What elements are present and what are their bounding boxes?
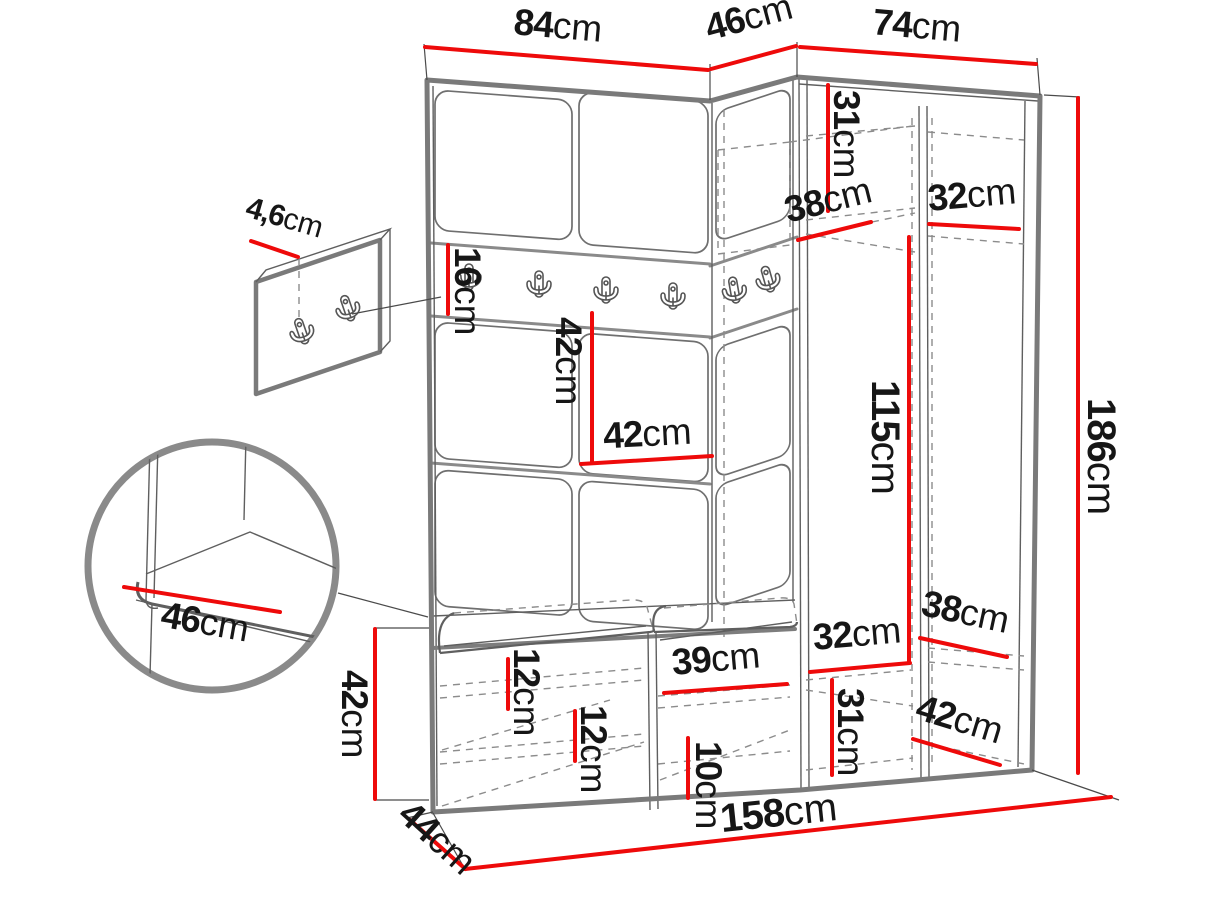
dim-line-84 xyxy=(425,47,708,70)
dimension-label: 186cm xyxy=(1079,398,1123,515)
dimension-label: 31cm xyxy=(830,688,871,776)
dimension-label: 16cm xyxy=(447,247,488,335)
corner-face-panels xyxy=(716,87,790,608)
dimension-label: 12cm xyxy=(506,648,547,736)
dimension-label: 74cm xyxy=(871,1,963,50)
dimension-label: 4,6cm xyxy=(242,191,327,244)
dim-line-4-6 xyxy=(251,241,298,257)
diagram-canvas: 84cm 46cm 74cm 4,6cm 16cm 42cm 42cm 31cm… xyxy=(0,0,1214,911)
dimension-label: 12cm xyxy=(573,705,614,793)
dimension-label: 42cm xyxy=(334,670,375,758)
dim-line-46-top xyxy=(711,46,796,69)
dimension-label: 32cm xyxy=(811,609,903,658)
dimension-label: 115cm xyxy=(863,380,907,495)
callout-circle xyxy=(88,442,336,690)
furniture-dimension-diagram: 84cm 46cm 74cm 4,6cm 16cm 42cm 42cm 31cm… xyxy=(0,0,1214,911)
dimension-label: 31cm xyxy=(826,90,867,178)
dimension-label: 46cm xyxy=(701,0,797,48)
dimension-label: 42cm xyxy=(548,317,589,405)
dimension-label: 32cm xyxy=(926,170,1018,219)
dimension-label: 84cm xyxy=(512,1,604,50)
dimension-label: 42cm xyxy=(602,411,693,457)
leader-line xyxy=(338,593,428,617)
dimension-label: 39cm xyxy=(670,634,762,683)
dim-line-74 xyxy=(800,47,1036,64)
